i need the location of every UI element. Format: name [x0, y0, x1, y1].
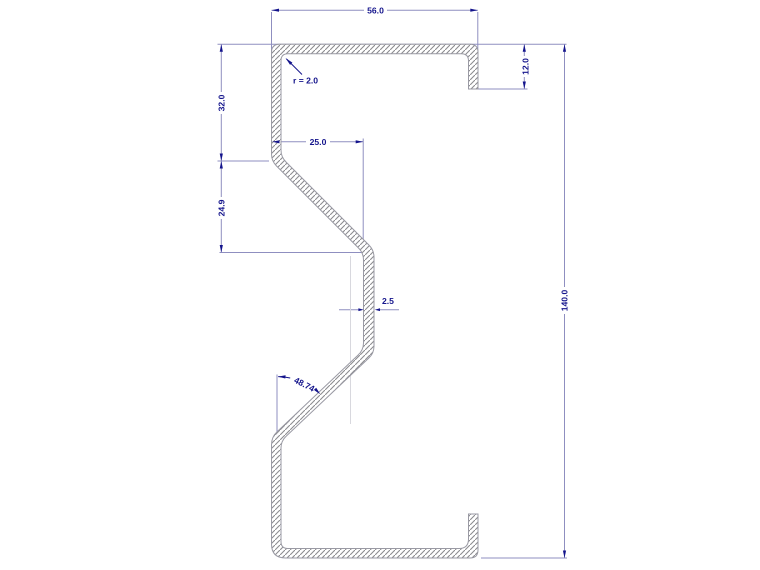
- svg-text:56.0: 56.0: [367, 5, 384, 15]
- svg-text:48.74: 48.74: [293, 375, 317, 394]
- svg-text:2.5: 2.5: [382, 296, 394, 306]
- svg-text:24.9: 24.9: [216, 199, 226, 216]
- svg-text:r = 2.0: r = 2.0: [293, 76, 318, 86]
- svg-text:12.0: 12.0: [520, 58, 530, 75]
- svg-text:140.0: 140.0: [559, 290, 569, 312]
- svg-text:25.0: 25.0: [310, 137, 327, 147]
- svg-text:32.0: 32.0: [216, 94, 226, 111]
